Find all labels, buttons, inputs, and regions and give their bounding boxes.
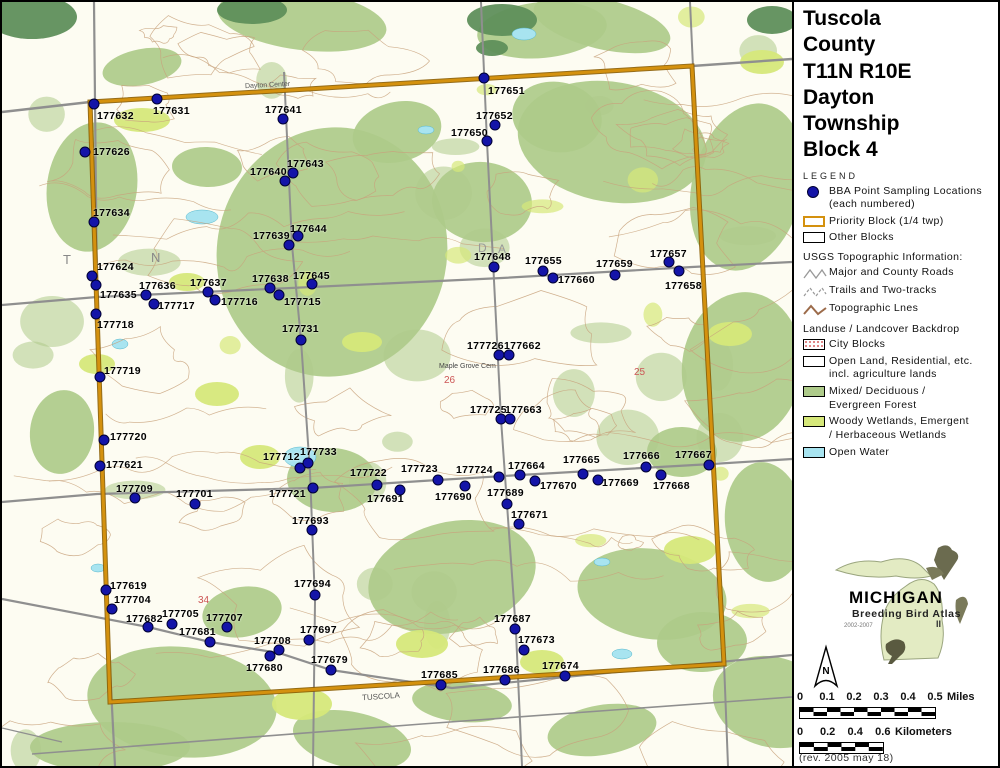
bba-point-label: 177621 — [106, 459, 143, 471]
bba-point — [296, 335, 307, 346]
miles-scalebar — [799, 707, 936, 719]
bba-point — [143, 622, 154, 633]
bba-point — [514, 519, 525, 530]
bba-label-line1: BBA Point Sampling Locations — [829, 185, 982, 197]
bba-point-label: 177674 — [542, 660, 579, 672]
landuse-label: Open Land, Residential, etc.incl. agricu… — [829, 355, 973, 382]
bba-point — [101, 585, 112, 596]
bba-point — [280, 176, 291, 187]
bba-point-label: 177669 — [602, 477, 639, 489]
bba-point — [610, 270, 621, 281]
bba-point — [510, 624, 521, 635]
bba-point — [489, 262, 500, 273]
scalebar-tick: 0.3 — [873, 691, 888, 703]
bba-point — [538, 266, 549, 277]
bba-point-label: 177719 — [104, 365, 141, 377]
scalebar-tick: 0.2 — [820, 726, 835, 738]
landuse-label: Open Water — [829, 446, 889, 460]
bba-point — [89, 217, 100, 228]
miles-unit: Miles — [947, 691, 975, 703]
landuse-item: Woody Wetlands, Emergent/ Herbaceous Wet… — [803, 415, 1000, 442]
roads-zigzag-icon — [803, 267, 829, 281]
bba-point — [307, 279, 318, 290]
bba-point — [504, 350, 515, 361]
bba-point-label: 177722 — [350, 467, 387, 479]
bba-point-label: 177715 — [284, 296, 321, 308]
landuse-swatch — [803, 356, 829, 367]
landuse-item: Open Water — [803, 446, 1000, 460]
bba-point-label: 177651 — [488, 85, 525, 97]
landuse-swatch — [803, 416, 829, 427]
trails-label: Trails and Two-tracks — [829, 284, 937, 298]
bba-point — [433, 475, 444, 486]
km-unit: Kilometers — [895, 726, 952, 738]
map-annotation-text: T — [63, 252, 71, 267]
landuse-heading: Landuse / Landcover Backdrop — [803, 323, 1000, 335]
bba-point-label: 177717 — [158, 300, 195, 312]
legend-item-roads: Major and County Roads — [803, 266, 1000, 281]
bba-point-label: 177624 — [97, 261, 134, 273]
bba-point-label: 177665 — [563, 454, 600, 466]
bba-point-label: 177670 — [540, 480, 577, 492]
bba-point-label: 177705 — [162, 608, 199, 620]
michigan-upper-peninsula-shape — [836, 559, 931, 578]
topo-zigzag-icon — [803, 303, 829, 317]
landuse-swatch — [803, 339, 829, 350]
bba-point-label: 177659 — [596, 258, 633, 270]
map-area[interactable]: TUSCOLAMaple Grove Cem342625TNDADayton C… — [2, 2, 792, 766]
bba-point — [326, 665, 337, 676]
bba-point — [482, 136, 493, 147]
bba-point-label: 177731 — [282, 323, 319, 335]
bba-point-label: 177658 — [665, 280, 702, 292]
priority-block-icon — [803, 216, 829, 227]
page: TUSCOLAMaple Grove Cem342625TNDADayton C… — [0, 0, 1000, 768]
bba-point — [293, 231, 304, 242]
legend-item-topolines: Topographic Lnes — [803, 302, 1000, 317]
bba-point — [205, 637, 216, 648]
bba-point — [130, 493, 141, 504]
bba-point — [310, 590, 321, 601]
bba-point — [167, 619, 178, 630]
bba-point — [515, 470, 526, 481]
title-line: Dayton — [803, 85, 1000, 111]
legend-item-bba: BBA Point Sampling Locations (each numbe… — [803, 185, 1000, 212]
landuse-swatch — [803, 386, 829, 397]
bba-point — [265, 651, 276, 662]
map-annotation-text: 26 — [444, 375, 455, 386]
title-line: Block 4 — [803, 137, 1000, 163]
bba-point — [656, 470, 667, 481]
bba-point — [89, 99, 100, 110]
scalebar-tick: 0.1 — [819, 691, 834, 703]
bba-point — [210, 295, 221, 306]
bba-point-label: 177619 — [110, 580, 147, 592]
map-annotation-text: 25 — [634, 367, 645, 378]
north-arrow-icon: N — [812, 644, 840, 690]
bba-point-label: 177668 — [653, 480, 690, 492]
landuse-list: City BlocksOpen Land, Residential, etc.i… — [803, 338, 1000, 459]
bba-point — [304, 635, 315, 646]
other-blocks-label: Other Blocks — [829, 231, 894, 245]
bba-point-label: 177721 — [269, 488, 306, 500]
side-panel: TuscolaCountyT11N R10EDaytonTownshipBloc… — [792, 2, 1000, 766]
bba-point — [560, 671, 571, 682]
map-annotation-text: N — [151, 250, 160, 265]
bba-point — [149, 299, 160, 310]
scalebar-tick: 0.2 — [846, 691, 861, 703]
bba-point-label: 177626 — [93, 146, 130, 158]
logo-numeral: II — [936, 619, 941, 629]
bba-point — [284, 240, 295, 251]
scalebar-tick: 0.4 — [848, 726, 863, 738]
trails-zigzag-icon — [803, 285, 829, 299]
bba-point-label: 177635 — [100, 289, 137, 301]
logo-years: 2002-2007 — [844, 623, 873, 629]
scalebar-tick: 0.5 — [927, 691, 942, 703]
bba-point — [95, 372, 106, 383]
bba-point-label: 177704 — [114, 594, 151, 606]
north-label: N — [822, 666, 829, 677]
bba-point-label: 177664 — [508, 460, 545, 472]
map-title: TuscolaCountyT11N R10EDaytonTownshipBloc… — [803, 6, 1000, 164]
scalebar-tick: 0.4 — [900, 691, 915, 703]
bba-point — [490, 120, 501, 131]
legend: BBA Point Sampling Locations (each numbe… — [803, 185, 1000, 460]
bba-point — [500, 675, 511, 686]
map-annotation-text: 34 — [198, 595, 209, 606]
landuse-label: Mixed/ Deciduous /Evergreen Forest — [829, 385, 926, 412]
bba-point-icon — [803, 186, 829, 198]
landuse-item: Open Land, Residential, etc.incl. agricu… — [803, 355, 1000, 382]
legend-item-priority-block: Priority Block (1/4 twp) — [803, 215, 1000, 229]
bba-point-label: 177712 — [263, 451, 300, 463]
bba-point-label: 177689 — [487, 487, 524, 499]
bba-point-label: 177666 — [623, 450, 660, 462]
logo-name: MICHIGAN — [849, 588, 943, 608]
bba-point — [502, 499, 513, 510]
bba-point — [91, 309, 102, 320]
landuse-item: City Blocks — [803, 338, 1000, 352]
legend-item-trails: Trails and Two-tracks — [803, 284, 1000, 299]
title-line: County — [803, 32, 1000, 58]
bba-point-label: 177724 — [456, 464, 493, 476]
landuse-label: Woody Wetlands, Emergent/ Herbaceous Wet… — [829, 415, 969, 442]
bba-point-label: 177634 — [93, 207, 130, 219]
bba-point — [152, 94, 163, 105]
bba-point — [593, 475, 604, 486]
bba-point-label: 177632 — [97, 110, 134, 122]
bba-point — [190, 499, 201, 510]
landuse-item: Mixed/ Deciduous /Evergreen Forest — [803, 385, 1000, 412]
bba-point — [99, 435, 110, 446]
bba-label-line2: (each numbered) — [829, 198, 915, 210]
bba-point — [274, 290, 285, 301]
bba-point — [674, 266, 685, 277]
bba-point-label: 177708 — [254, 635, 291, 647]
legend-item-other-blocks: Other Blocks — [803, 231, 1000, 245]
bba-point — [641, 462, 652, 473]
bba-point — [578, 469, 589, 480]
bba-point — [548, 273, 559, 284]
bba-point-label: 177631 — [153, 105, 190, 117]
bba-point — [505, 414, 516, 425]
bba-point — [530, 476, 541, 487]
topolines-label: Topographic Lnes — [829, 302, 918, 316]
bba-point-label: 177718 — [97, 319, 134, 331]
title-line: Tuscola — [803, 6, 1000, 32]
bba-point — [372, 480, 383, 491]
roads-label: Major and County Roads — [829, 266, 954, 280]
bba-point — [308, 483, 319, 494]
bba-point — [436, 680, 447, 691]
title-line: T11N R10E — [803, 59, 1000, 85]
bba-point — [95, 461, 106, 472]
scalebar-tick: 0.6 — [875, 726, 890, 738]
priority-block-label: Priority Block (1/4 twp) — [829, 215, 944, 229]
revision-note: (rev. 2005 may 18) — [799, 752, 894, 764]
bba-point — [494, 472, 505, 483]
bba-point-label: 177694 — [294, 578, 331, 590]
landuse-label: City Blocks — [829, 338, 885, 352]
bba-point — [479, 73, 490, 84]
usgs-heading: USGS Topographic Information: — [803, 251, 1000, 263]
other-blocks-icon — [803, 232, 829, 243]
bba-point — [704, 460, 715, 471]
bba-point — [91, 280, 102, 291]
landuse-swatch — [803, 447, 829, 458]
bba-point-label: 177690 — [435, 491, 472, 503]
bba-point-label: 177720 — [110, 431, 147, 443]
title-line: Township — [803, 111, 1000, 137]
bba-point-label: 177680 — [246, 662, 283, 674]
bba-point — [80, 147, 91, 158]
bba-point — [395, 485, 406, 496]
bba-point — [278, 114, 289, 125]
bba-point — [519, 645, 530, 656]
bba-point-label: 177733 — [300, 446, 337, 458]
logo-subtitle: Breeding Bird Atlas — [852, 608, 961, 620]
bba-point-label: 177716 — [221, 296, 258, 308]
map-annotation-text: Maple Grove Cem — [439, 363, 496, 370]
bba-point-label: 177660 — [558, 274, 595, 286]
bba-point — [460, 481, 471, 492]
scalebar-tick: 0 — [797, 691, 803, 703]
bba-point-label: 177723 — [401, 463, 438, 475]
bba-point — [222, 622, 233, 633]
scalebar-tick: 0 — [797, 726, 803, 738]
legend-heading: LEGEND — [803, 171, 1000, 181]
bba-point — [664, 257, 675, 268]
bba-point — [303, 458, 314, 469]
bba-point — [107, 604, 118, 615]
bba-point — [307, 525, 318, 536]
